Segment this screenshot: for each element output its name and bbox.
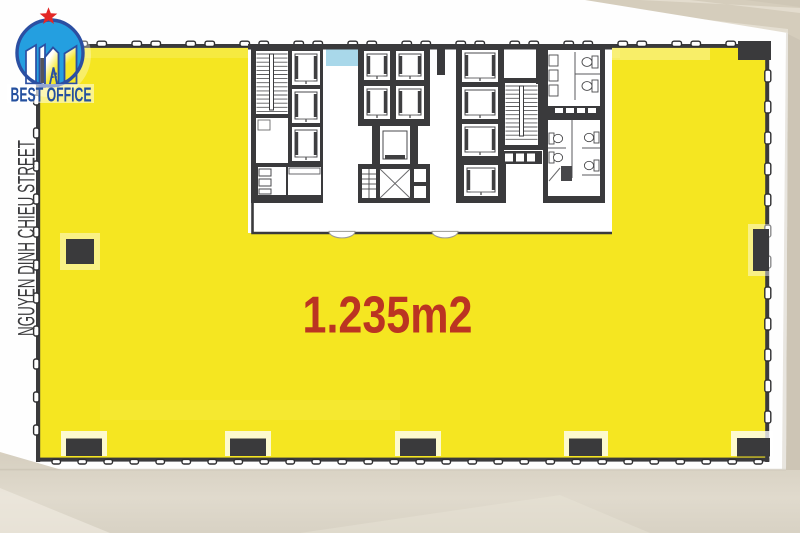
svg-text:1.235m2: 1.235m2 — [303, 286, 473, 344]
svg-text:NGUYEN DINH CHIEU STREET: NGUYEN DINH CHIEU STREET — [14, 140, 41, 336]
svg-text:BEST OFFICE: BEST OFFICE — [11, 84, 92, 107]
